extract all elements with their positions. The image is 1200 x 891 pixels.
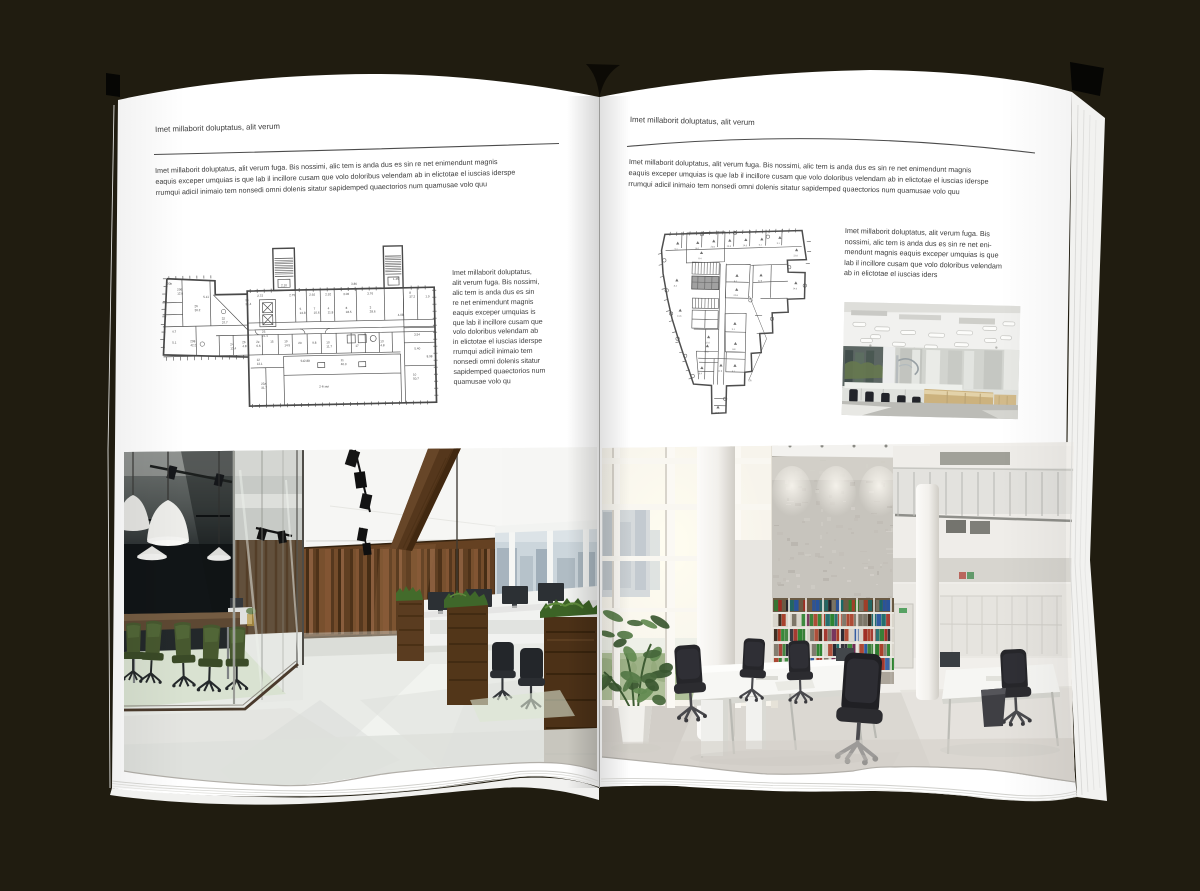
svg-text:15: 15: [270, 340, 274, 344]
svg-text:21.4: 21.4: [262, 334, 268, 338]
svg-text:8.98: 8.98: [427, 354, 433, 358]
svg-text:4.8: 4.8: [380, 343, 385, 347]
svg-text:42.2: 42.2: [190, 343, 196, 347]
svg-text:3.76: 3.76: [367, 291, 373, 295]
svg-text:2.92: 2.92: [309, 293, 315, 297]
svg-text:2.75: 2.75: [289, 293, 295, 297]
svg-text:2.92: 2.92: [325, 292, 331, 296]
svg-text:21.4: 21.4: [245, 302, 251, 306]
svg-text:28.6: 28.6: [370, 309, 376, 313]
svg-text:20: 20: [298, 341, 302, 345]
svg-text:11.7: 11.7: [326, 344, 332, 348]
svg-text:14.5: 14.5: [284, 343, 290, 347]
svg-text:5.11: 5.11: [203, 295, 209, 299]
svg-text:18.5: 18.5: [346, 310, 352, 314]
svg-text:2.10: 2.10: [281, 283, 287, 287]
svg-text:17: 17: [355, 344, 359, 348]
svg-text:3.86: 3.86: [351, 282, 357, 286]
svg-text:13.1: 13.1: [257, 362, 263, 366]
svg-text:2-й зал: 2-й зал: [319, 384, 329, 388]
svg-text:4.8: 4.8: [242, 344, 247, 348]
svg-text:50.7: 50.7: [413, 377, 419, 381]
svg-text:9.8: 9.8: [312, 341, 317, 345]
svg-text:13.4: 13.4: [230, 346, 236, 350]
svg-text:31.7: 31.7: [261, 386, 267, 390]
svg-text:6.6: 6.6: [256, 344, 261, 348]
svg-text:1.45: 1.45: [393, 277, 399, 281]
svg-text:3.54: 3.54: [414, 332, 420, 336]
svg-text:5.40: 5.40: [414, 346, 420, 350]
svg-text:30.2: 30.2: [195, 308, 201, 312]
svg-text:4.08: 4.08: [398, 313, 404, 317]
svg-text:1.9: 1.9: [425, 294, 430, 298]
svg-text:11.8: 11.8: [328, 310, 334, 314]
svg-text:гл: гл: [749, 378, 752, 382]
svg-text:13.8: 13.8: [300, 311, 306, 315]
svg-text:10.6: 10.6: [314, 311, 320, 315]
svg-text:3.06: 3.06: [343, 292, 349, 296]
svg-text:542.88: 542.88: [301, 359, 311, 363]
svg-text:2.72: 2.72: [257, 294, 263, 298]
svg-text:40.3: 40.3: [341, 362, 347, 366]
svg-text:37.2: 37.2: [409, 295, 415, 299]
svg-text:37.7: 37.7: [222, 321, 228, 325]
